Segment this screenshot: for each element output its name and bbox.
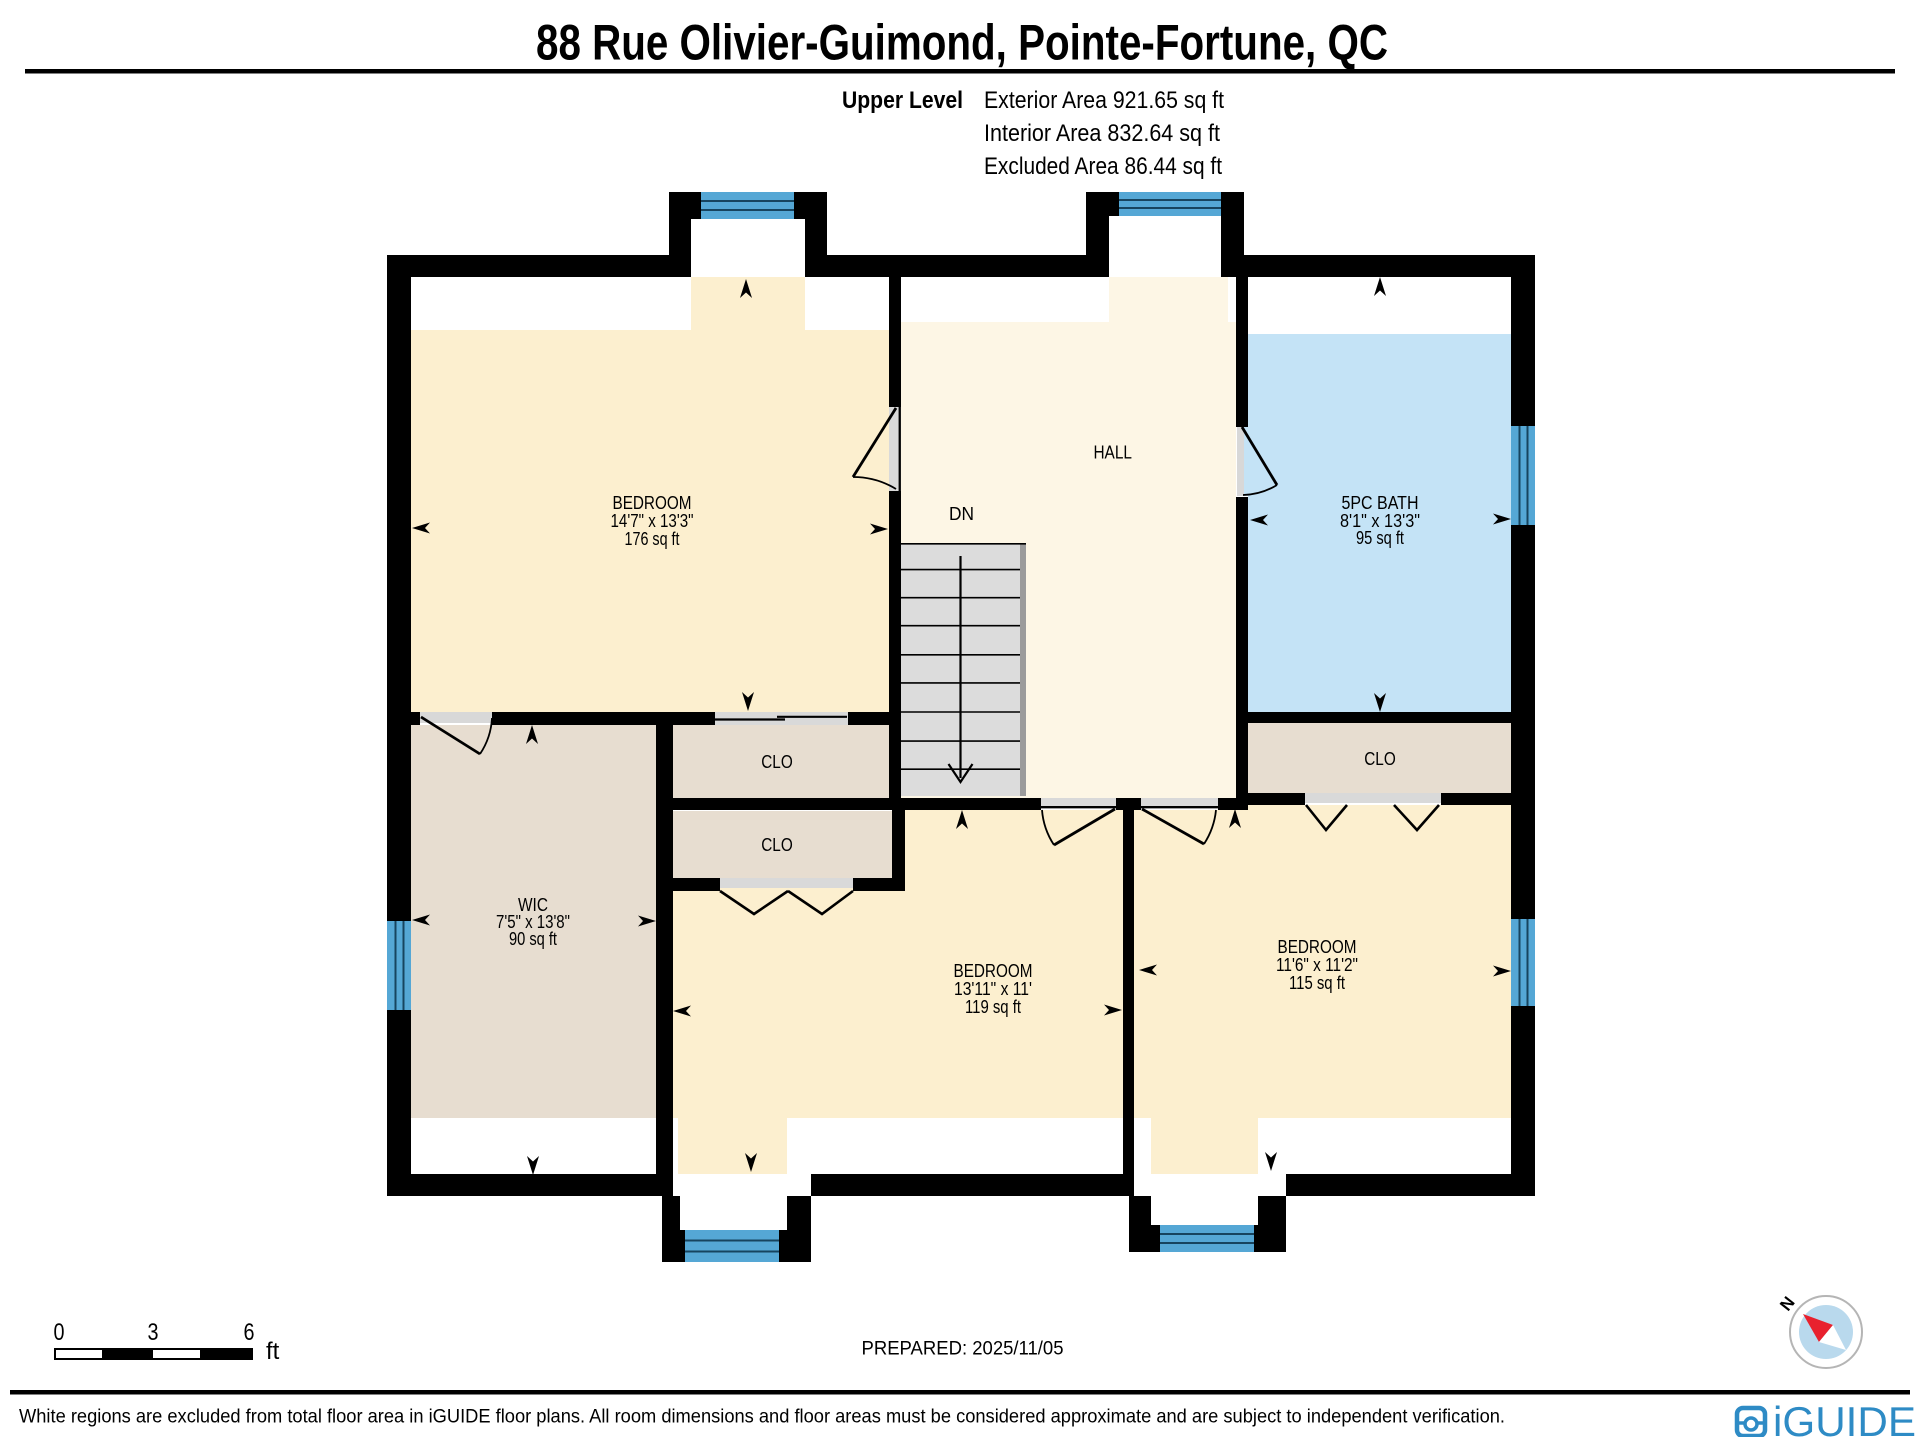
svg-text:119 sq ft: 119 sq ft (965, 997, 1021, 1017)
svg-text:Excluded Area 86.44 sq ft: Excluded Area 86.44 sq ft (984, 153, 1222, 180)
svg-text:BEDROOM: BEDROOM (954, 961, 1033, 981)
svg-text:90 sq ft: 90 sq ft (509, 929, 557, 949)
svg-text:iGUIDE: iGUIDE (1773, 1398, 1916, 1437)
svg-text:BEDROOM: BEDROOM (1278, 937, 1357, 957)
svg-text:14'7" x 13'3": 14'7" x 13'3" (611, 511, 694, 531)
svg-text:PREPARED: 2025/11/05: PREPARED: 2025/11/05 (862, 1339, 1064, 1360)
svg-text:0: 0 (54, 1319, 65, 1346)
svg-text:5PC BATH: 5PC BATH (1342, 493, 1419, 513)
svg-text:3: 3 (148, 1319, 159, 1346)
svg-text:11'6" x 11'2": 11'6" x 11'2" (1276, 955, 1358, 975)
svg-text:HALL: HALL (1093, 443, 1132, 463)
svg-text:Exterior Area 921.65 sq ft: Exterior Area 921.65 sq ft (984, 87, 1224, 114)
svg-text:ft: ft (266, 1338, 280, 1365)
svg-text:CLO: CLO (761, 835, 793, 855)
svg-text:88 Rue Olivier-Guimond, Pointe: 88 Rue Olivier-Guimond, Pointe-Fortune, … (536, 15, 1388, 71)
svg-text:CLO: CLO (1364, 749, 1396, 769)
svg-text:CLO: CLO (761, 752, 793, 772)
svg-text:176 sq ft: 176 sq ft (625, 529, 680, 549)
svg-text:115 sq ft: 115 sq ft (1289, 973, 1345, 993)
svg-text:Upper Level: Upper Level (842, 87, 963, 114)
svg-text:Interior Area 832.64 sq ft: Interior Area 832.64 sq ft (984, 120, 1220, 147)
svg-text:BEDROOM: BEDROOM (613, 493, 692, 513)
svg-text:6: 6 (244, 1319, 255, 1346)
svg-text:White regions are excluded fro: White regions are excluded from total fl… (19, 1407, 1505, 1428)
svg-text:13'11" x 11': 13'11" x 11' (954, 979, 1032, 999)
svg-text:DN: DN (949, 504, 974, 524)
svg-text:95 sq ft: 95 sq ft (1356, 528, 1404, 548)
